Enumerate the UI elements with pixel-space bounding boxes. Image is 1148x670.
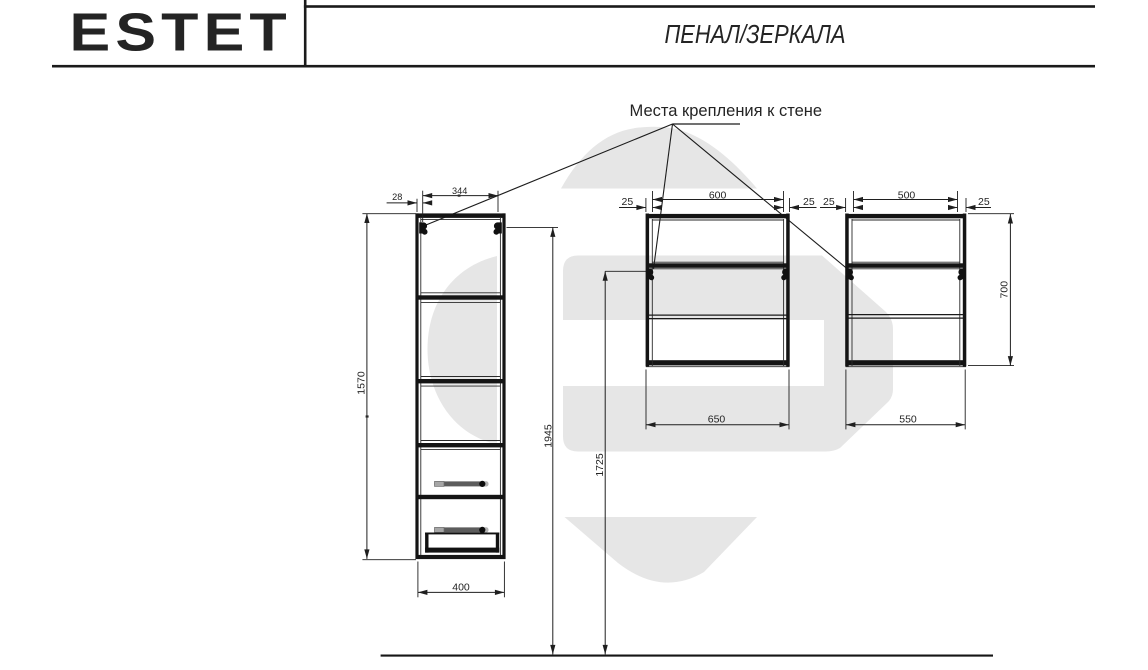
- svg-text:25: 25: [978, 196, 990, 208]
- svg-text:700: 700: [999, 281, 1011, 299]
- svg-text:28: 28: [392, 192, 402, 202]
- svg-text:600: 600: [709, 189, 727, 201]
- svg-text:550: 550: [899, 413, 917, 425]
- svg-text:25: 25: [803, 196, 815, 208]
- svg-text:ESTET: ESTET: [70, 3, 292, 63]
- svg-text:Места крепления к стене: Места крепления к стене: [630, 102, 823, 120]
- svg-text:1945: 1945: [543, 424, 555, 448]
- svg-text:400: 400: [452, 582, 470, 594]
- svg-text:650: 650: [708, 413, 726, 425]
- svg-text:500: 500: [898, 189, 916, 201]
- svg-text:25: 25: [622, 196, 634, 208]
- svg-text:25: 25: [823, 196, 835, 208]
- svg-text:1570: 1570: [356, 371, 368, 395]
- svg-text:ПЕНАЛ/ЗЕРКАЛА: ПЕНАЛ/ЗЕРКАЛА: [665, 19, 846, 49]
- svg-text:1725: 1725: [594, 453, 606, 477]
